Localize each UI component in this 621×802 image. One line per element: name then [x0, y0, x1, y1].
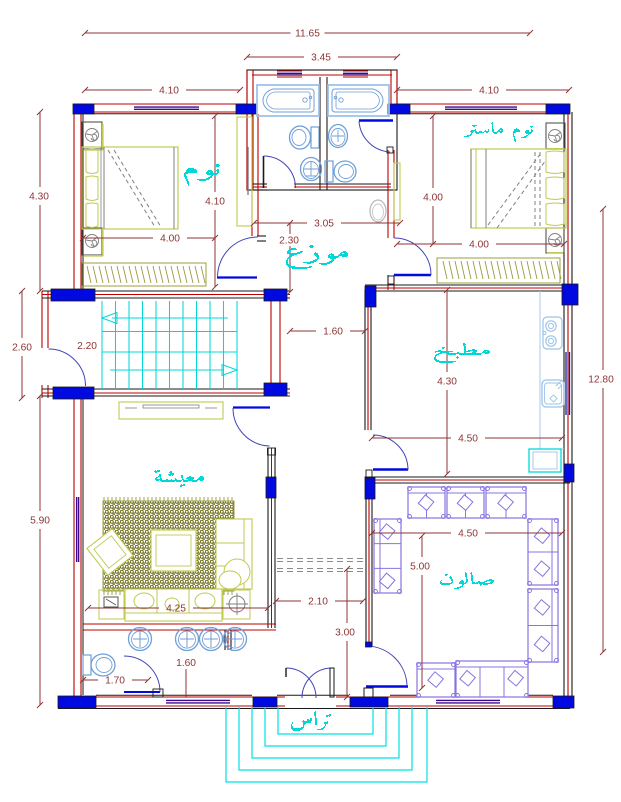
- svg-text:4.30: 4.30: [437, 377, 457, 388]
- svg-text:3.00: 3.00: [335, 628, 355, 639]
- svg-text:1.60: 1.60: [323, 327, 343, 338]
- svg-text:4.00: 4.00: [160, 234, 180, 245]
- svg-text:3.45: 3.45: [311, 53, 331, 64]
- svg-text:2.30: 2.30: [279, 236, 299, 247]
- svg-text:4.50: 4.50: [458, 529, 478, 540]
- svg-text:5.00: 5.00: [410, 562, 430, 573]
- svg-text:12.80: 12.80: [588, 375, 614, 386]
- svg-text:1.70: 1.70: [105, 676, 125, 687]
- svg-text:11.65: 11.65: [295, 29, 320, 40]
- svg-text:2.20: 2.20: [77, 341, 97, 352]
- svg-text:4.10: 4.10: [479, 86, 499, 97]
- svg-text:4.25: 4.25: [166, 604, 186, 615]
- svg-text:2.60: 2.60: [12, 343, 32, 354]
- svg-text:4.30: 4.30: [29, 192, 49, 203]
- svg-text:4.50: 4.50: [458, 434, 478, 445]
- svg-text:5.90: 5.90: [30, 516, 50, 527]
- svg-text:4.00: 4.00: [423, 193, 443, 204]
- svg-text:4.10: 4.10: [159, 86, 179, 97]
- svg-text:4.10: 4.10: [205, 197, 225, 208]
- svg-text:1.60: 1.60: [176, 658, 196, 669]
- svg-text:3.05: 3.05: [314, 219, 334, 230]
- svg-text:4.00: 4.00: [469, 240, 489, 251]
- svg-text:2.10: 2.10: [308, 597, 328, 608]
